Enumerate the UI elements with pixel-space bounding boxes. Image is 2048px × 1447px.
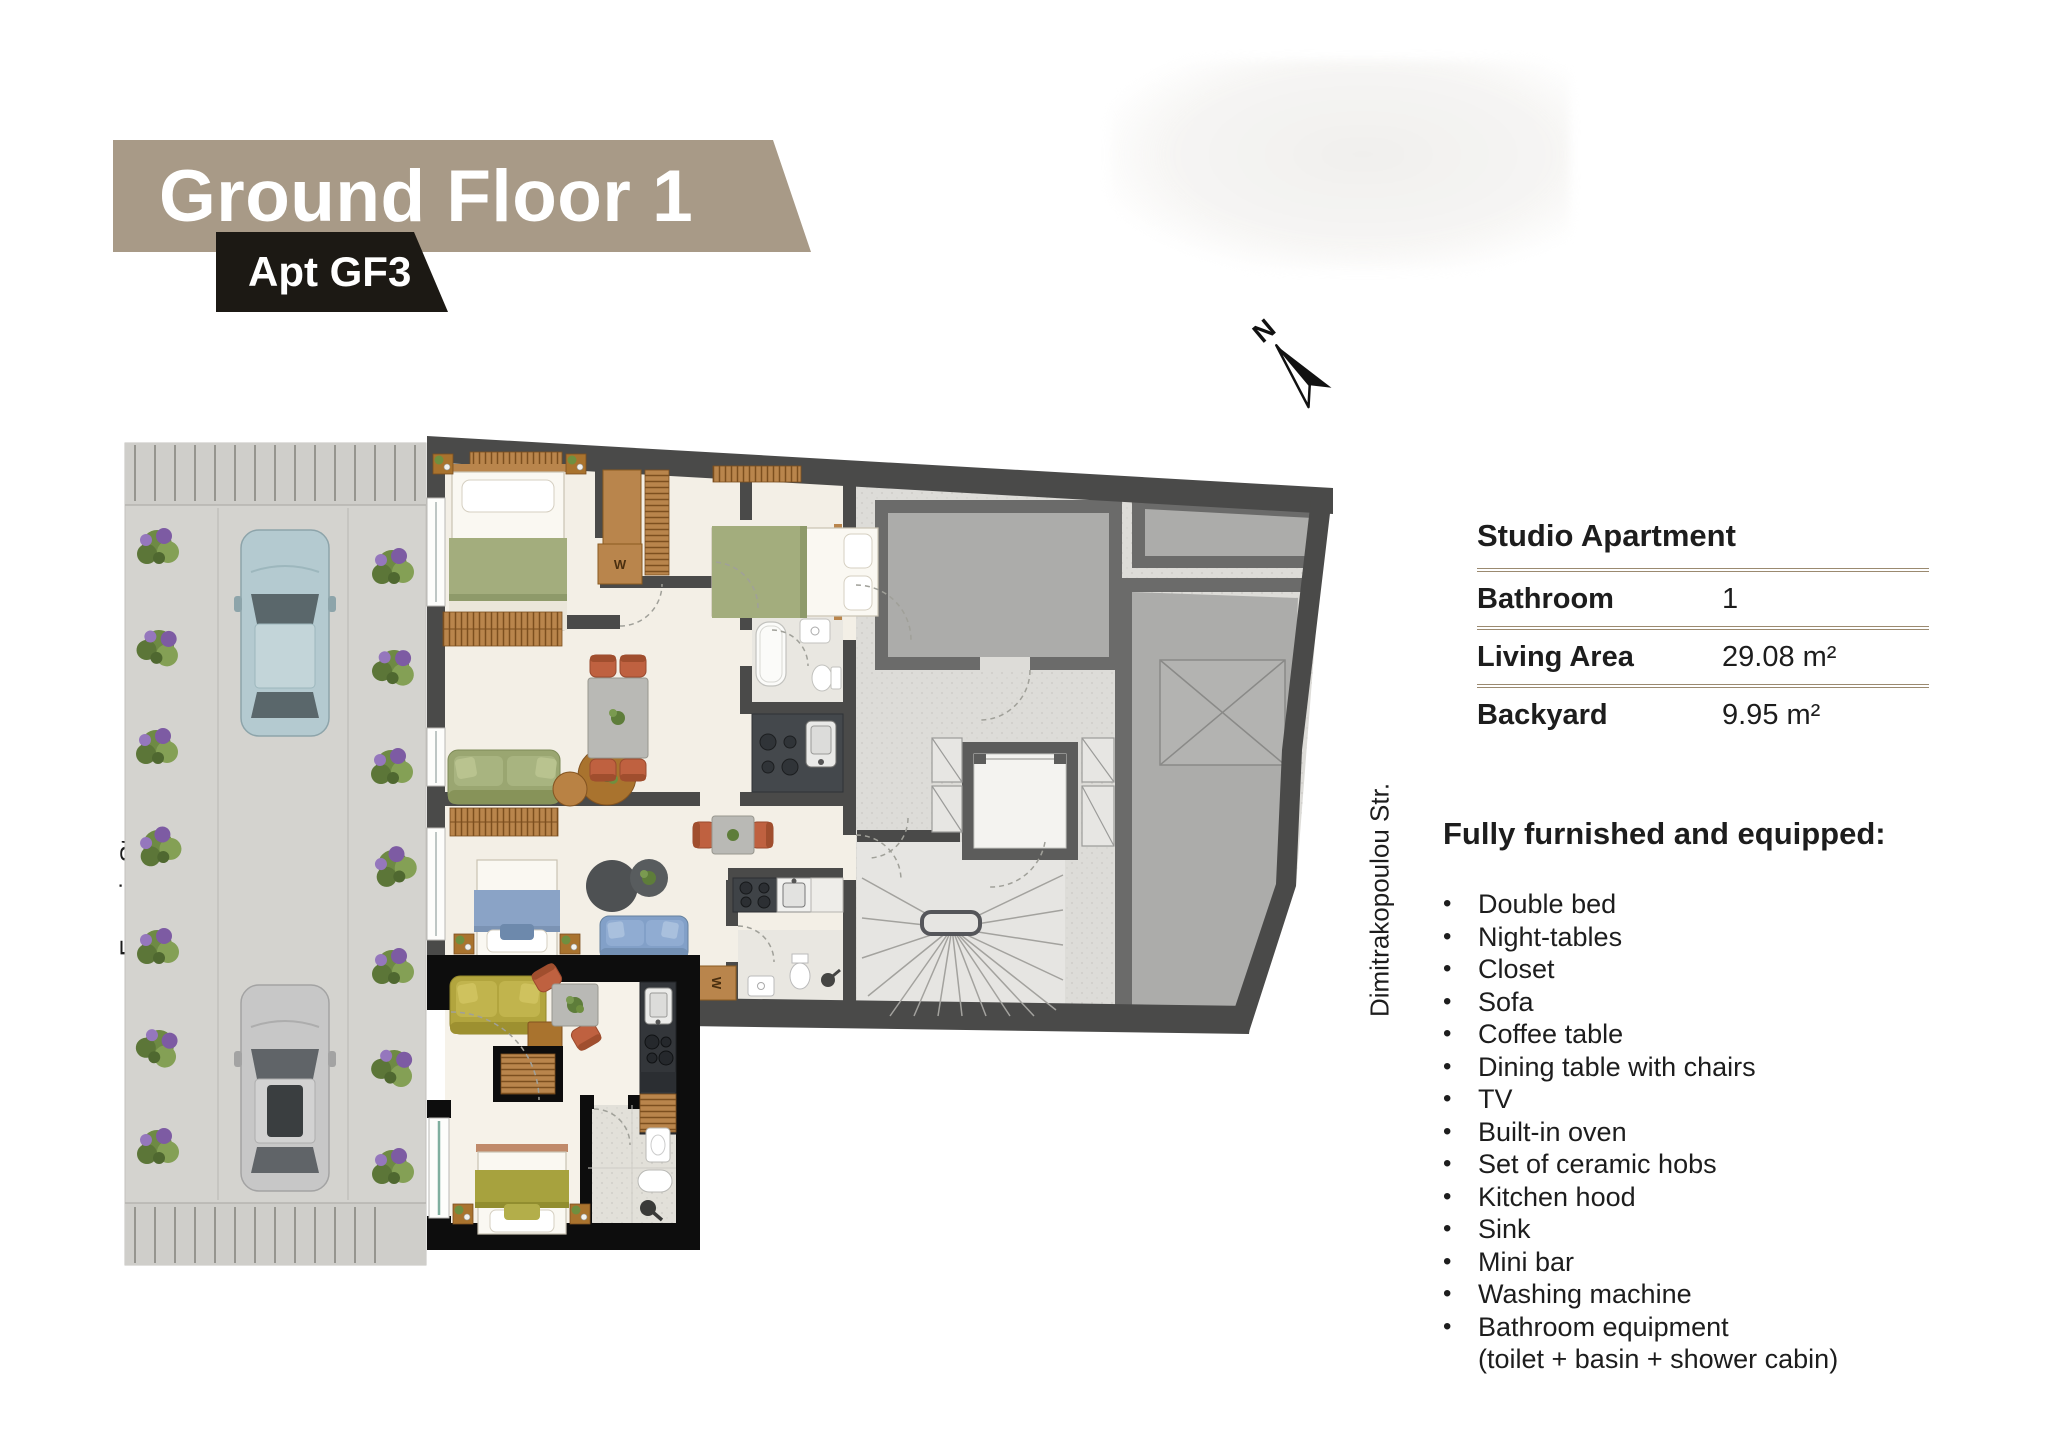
kitchen-counter (752, 714, 843, 792)
list-item: •TV (1443, 1083, 1963, 1116)
apartment-badge: Apt GF3 (216, 232, 450, 312)
page-title: Ground Floor 1 (159, 155, 693, 238)
sidewalk-hatch-top (125, 443, 426, 505)
list-item: •Sink (1443, 1213, 1963, 1246)
row-label: Bathroom (1477, 583, 1722, 616)
double-bed-blue (474, 860, 560, 958)
svg-text:W: W (614, 557, 627, 572)
wardrobe-w-box-2: W (696, 966, 736, 1000)
wardrobe-gf3 (493, 1046, 563, 1102)
night-table (453, 1204, 473, 1224)
gf3-window (429, 1118, 449, 1218)
double-bed-olive (475, 1144, 569, 1234)
elevator (962, 742, 1078, 860)
kitchen-counter-2 (733, 878, 843, 912)
list-item: •Built-in oven (1443, 1116, 1963, 1149)
sofa-blue (600, 916, 688, 960)
list-item: •Dining table with chairs (1443, 1051, 1963, 1084)
double-bed-2 (712, 524, 878, 620)
row-value: 29.08 m² (1722, 641, 1836, 674)
list-item: •Mini bar (1443, 1246, 1963, 1279)
night-table (560, 934, 580, 954)
furnished-heading: Fully furnished and equipped: (1443, 816, 1963, 852)
floor-plan: W (100, 330, 1430, 1310)
furnished-list-section: Fully furnished and equipped: •Double be… (1443, 816, 1963, 1376)
list-item: •Double bed (1443, 888, 1963, 921)
paper-texture-artifact (1110, 60, 1570, 270)
car-top (234, 530, 336, 736)
night-table (570, 1204, 590, 1224)
room-c (1115, 578, 1308, 1020)
info-table-header: Studio Apartment (1477, 518, 1929, 568)
night-table (433, 454, 453, 474)
list-item: •Closet (1443, 953, 1963, 986)
list-item: •Sofa (1443, 986, 1963, 1019)
dining-table-2 (693, 816, 773, 854)
kitchen-counter-3 (640, 982, 676, 1134)
room-a (875, 500, 1122, 670)
list-item: •Kitchen hood (1443, 1181, 1963, 1214)
wardrobe-w-box: W (598, 544, 642, 584)
apartment-badge-label: Apt GF3 (248, 248, 411, 296)
night-table (454, 934, 474, 954)
parking-area (125, 443, 426, 1265)
row-label: Living Area (1477, 641, 1722, 674)
list-item: • Bathroom equipment (toilet + basin + s… (1443, 1311, 1963, 1376)
furnished-list: •Double bed •Night-tables •Closet •Sofa … (1443, 888, 1963, 1376)
sidewalk-hatch-bottom (125, 1203, 426, 1265)
sofa-green (448, 750, 560, 804)
list-item: •Night-tables (1443, 921, 1963, 954)
night-table (566, 454, 586, 474)
row-label: Backyard (1477, 699, 1722, 732)
list-item: •Set of ceramic hobs (1443, 1148, 1963, 1181)
row-value: 1 (1722, 583, 1738, 616)
table-row: Backyard 9.95 m² (1477, 684, 1929, 742)
list-item-note: (toilet + basin + shower cabin) (1478, 1343, 1838, 1376)
double-bed (449, 464, 567, 630)
table-row: Living Area 29.08 m² (1477, 626, 1929, 684)
table-row: Bathroom 1 (1477, 568, 1929, 626)
row-value: 9.95 m² (1722, 699, 1820, 732)
floor-plan-page: { "header": { "title": "Ground Floor 1",… (0, 0, 2048, 1447)
apartment-info-table: Studio Apartment Bathroom 1 Living Area … (1477, 518, 1929, 742)
car-bottom (234, 985, 336, 1191)
list-item: •Washing machine (1443, 1278, 1963, 1311)
shaft-x-box (1160, 660, 1285, 765)
list-item: •Coffee table (1443, 1018, 1963, 1051)
svg-text:W: W (709, 977, 724, 990)
